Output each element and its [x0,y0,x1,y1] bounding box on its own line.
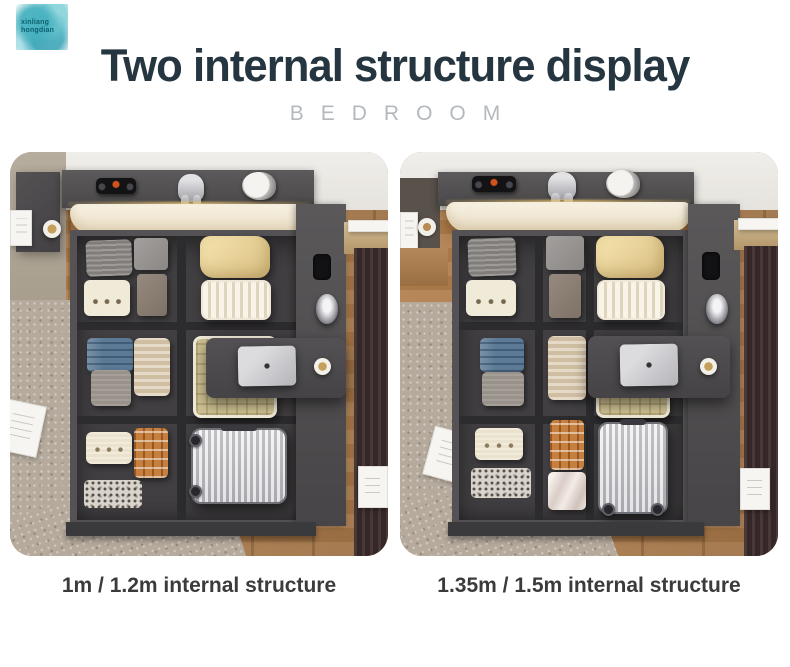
yellow-pillow [596,236,664,278]
base-plinth [66,522,316,536]
shelf-frame [452,230,459,526]
photo-panels [10,152,778,556]
folded-cloth [137,274,167,316]
folded-cloth [482,372,524,406]
caption-small-structure: 1m / 1.2m internal structure [10,572,388,600]
shelf-divider [77,322,309,330]
speckled-blanket [471,468,531,498]
suitcase-wheel [651,503,664,516]
wall-sconce [706,294,728,324]
caption-large-structure: 1.35m / 1.5m internal structure [400,572,778,600]
folded-sweater [467,237,516,277]
yellow-pillow [200,236,270,278]
folded-cloth [549,274,581,318]
folded-cloth [546,236,584,270]
page-title: Two internal structure display [12,38,778,94]
folded-shirt [466,280,516,316]
folded-sweater [85,239,132,277]
striped-pillow [597,280,665,320]
suitcase-handle [620,419,646,425]
suitcase [191,428,287,504]
stacked-books [738,218,778,230]
coffee-cup [700,358,717,375]
coffee-cup [314,358,331,375]
folded-shirt [84,280,130,316]
astronaut-figurine [548,172,576,200]
astronaut-figurine [178,174,204,202]
shelf-divider [535,236,543,520]
plaid-cloth [550,420,584,470]
promo-page: xinliang hongdian Two internal structure… [0,0,790,667]
folded-cloth [134,238,168,270]
toy-car [96,178,136,194]
sideboard [400,248,448,286]
picture-frame [10,210,32,246]
poster [358,466,388,508]
stacked-books [348,220,388,232]
decor-plate [418,218,436,236]
suitcase-handle [221,425,258,431]
shelf-divider [459,322,683,330]
cap-hat [606,170,640,198]
brand-watermark-text: xinliang hongdian [21,19,54,35]
knit-sweater [86,432,132,464]
shelf-frame [70,230,77,526]
satin-cloth [548,472,586,510]
plaid-cloth [134,428,168,478]
headboard-cushion [446,202,692,232]
knit-sweater [475,428,523,460]
door-handle [702,252,720,280]
photo-internal-structure-large [400,152,778,556]
shelf-divider [177,236,186,520]
shelf-frame [70,230,316,236]
suitcase-wheel [602,503,615,516]
cap-hat [242,172,276,200]
folded-jeans [87,338,133,372]
captions-row: 1m / 1.2m internal structure 1.35m / 1.5… [10,572,778,600]
striped-pillow [201,280,271,320]
coffee-cup [43,220,61,238]
laptop [620,343,679,386]
picture-frame [400,212,418,250]
folded-blanket [134,338,170,396]
base-plinth [448,522,704,536]
suitcase-wheel [189,485,202,498]
wall-sconce [316,294,338,324]
folded-towel [548,336,586,400]
speckled-blanket [84,480,142,508]
door-handle [313,254,331,280]
shelf-divider [77,416,309,424]
laptop [238,345,297,386]
brand-watermark-line2: hongdian [21,27,54,35]
suitcase-wheel [189,434,202,447]
brand-watermark-line1: xinliang [21,19,54,27]
suitcase [598,422,668,514]
curtain [354,248,388,556]
folded-jeans [480,338,524,372]
toy-car [472,176,516,192]
page-subtitle: BEDROOM [0,102,790,126]
folded-cloth [91,370,131,406]
poster [740,468,770,510]
photo-internal-structure-small [10,152,388,556]
